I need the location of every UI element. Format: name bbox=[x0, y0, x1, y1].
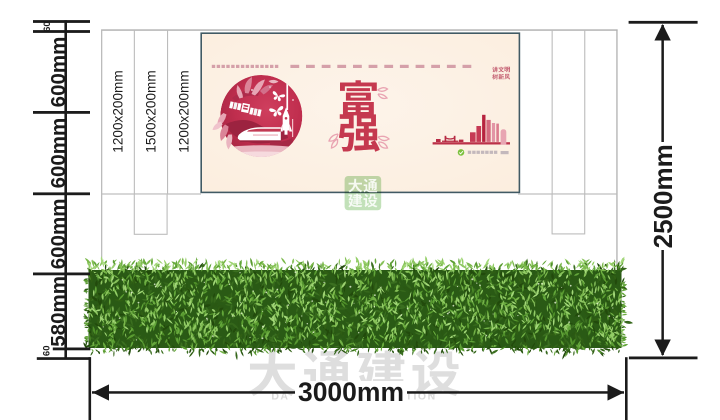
svg-text:3000mm: 3000mm bbox=[298, 377, 404, 407]
svg-text:600mm: 600mm bbox=[47, 118, 70, 189]
svg-text:60: 60 bbox=[42, 346, 53, 357]
svg-text:600mm: 600mm bbox=[47, 199, 70, 270]
svg-text:1500x200mm: 1500x200mm bbox=[143, 70, 158, 152]
svg-text:1200x200mm: 1200x200mm bbox=[177, 70, 192, 152]
svg-text:1200x200mm: 1200x200mm bbox=[111, 70, 126, 152]
svg-text:60: 60 bbox=[42, 21, 53, 32]
svg-text:2500mm: 2500mm bbox=[648, 144, 678, 248]
svg-text:580mm: 580mm bbox=[47, 276, 70, 347]
svg-text:600mm: 600mm bbox=[47, 37, 70, 108]
